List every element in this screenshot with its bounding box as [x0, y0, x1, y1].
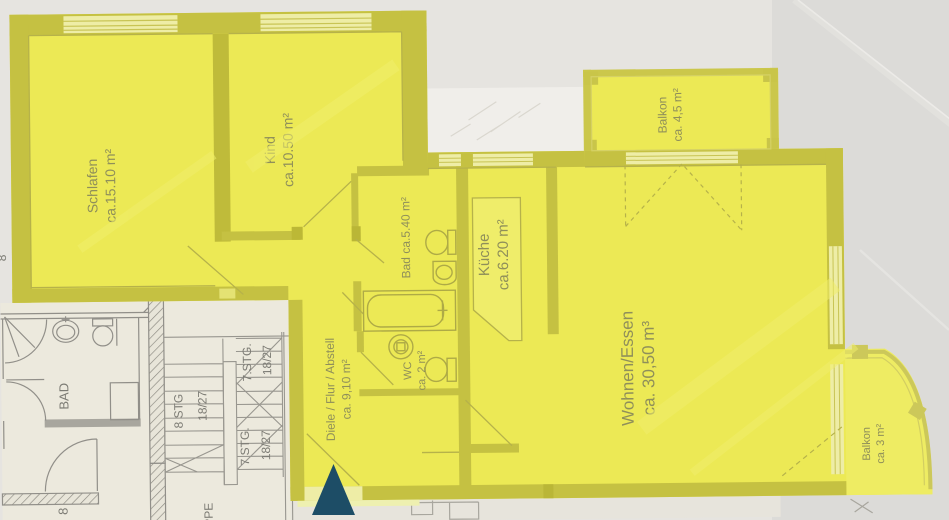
svg-text:8 STG: 8 STG: [171, 394, 185, 429]
svg-text:ca. 30,50 m³: ca. 30,50 m³: [639, 321, 659, 416]
svg-text:ca. 4,5 m²: ca. 4,5 m²: [670, 88, 685, 142]
svg-text:ca.6.20 m²: ca.6.20 m²: [495, 219, 513, 290]
svg-text:7.STG.: 7.STG.: [240, 343, 254, 381]
svg-text:Diele / Flur / Abstell: Diele / Flur / Abstell: [323, 338, 338, 442]
svg-text:Bad ca.5.40 m²: Bad ca.5.40 m²: [398, 197, 413, 279]
svg-text:Wohnen/Essen: Wohnen/Essen: [618, 311, 638, 426]
svg-text:8: 8: [56, 508, 71, 515]
svg-text:Schlafen: Schlafen: [84, 159, 101, 214]
svg-text:TREPPE: TREPPE: [202, 503, 217, 520]
svg-text:7 STG.: 7 STG.: [238, 427, 252, 465]
svg-text:ca. 2 m²: ca. 2 m²: [416, 350, 428, 390]
svg-text:Balkon: Balkon: [655, 97, 669, 134]
svg-text:18/27: 18/27: [259, 430, 273, 461]
svg-text:WC: WC: [402, 361, 414, 380]
svg-text:ca.15.10 m²: ca.15.10 m²: [102, 148, 119, 222]
svg-text:18/27: 18/27: [260, 345, 274, 376]
svg-text:8: 8: [0, 254, 9, 261]
svg-text:Balkon: Balkon: [861, 427, 873, 461]
svg-text:ca. 3 m²: ca. 3 m²: [875, 423, 887, 463]
svg-text:18/27: 18/27: [195, 390, 209, 421]
svg-text:BAD: BAD: [56, 383, 71, 410]
svg-text:Küche: Küche: [476, 234, 493, 277]
svg-text:ca. 9,10 m²: ca. 9,10 m²: [339, 359, 354, 419]
